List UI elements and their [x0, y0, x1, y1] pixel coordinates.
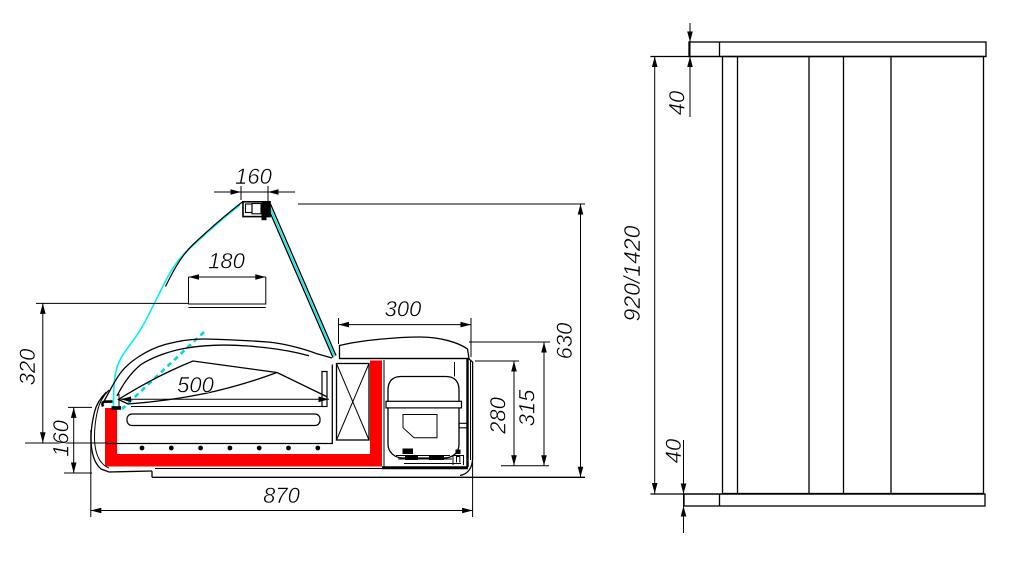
svg-text:160: 160 [49, 419, 74, 456]
svg-text:920/1420: 920/1420 [619, 225, 645, 321]
svg-text:320: 320 [15, 348, 40, 385]
svg-text:315: 315 [515, 389, 540, 426]
svg-text:160: 160 [235, 164, 272, 189]
svg-text:500: 500 [177, 373, 214, 398]
svg-text:40: 40 [665, 90, 690, 115]
svg-text:180: 180 [208, 249, 245, 274]
svg-text:870: 870 [263, 483, 300, 508]
svg-text:40: 40 [661, 438, 686, 463]
svg-text:280: 280 [486, 396, 511, 434]
svg-text:630: 630 [552, 322, 577, 359]
svg-text:300: 300 [385, 297, 422, 322]
